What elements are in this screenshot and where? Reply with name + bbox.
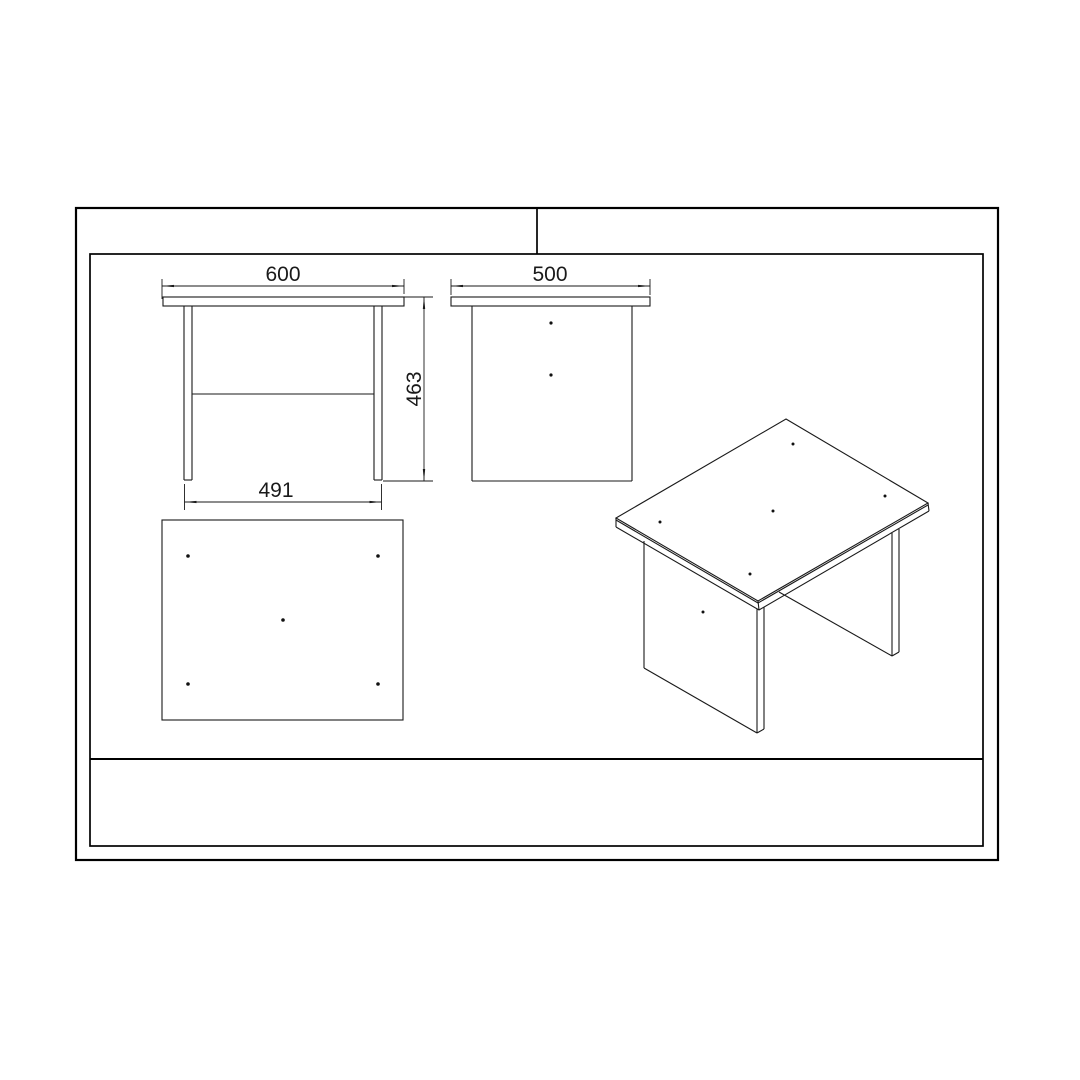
side-panel xyxy=(472,306,632,481)
fastener-dot xyxy=(702,611,705,614)
drawing-sheet: 600 491 463 xyxy=(0,0,1080,1080)
iso-tabletop xyxy=(616,419,929,610)
fastener-dot xyxy=(792,443,795,446)
fastener-dot xyxy=(281,618,285,622)
fastener-dot xyxy=(549,373,552,376)
front-view: 600 491 463 xyxy=(162,263,433,510)
front-right-leg xyxy=(374,306,382,480)
fastener-dot xyxy=(549,321,552,324)
title-block-area xyxy=(90,759,983,846)
fastener-dot xyxy=(772,510,775,513)
dimension-height: 463 xyxy=(383,297,433,481)
iso-far-leg xyxy=(779,529,899,656)
technical-drawing: 600 491 463 xyxy=(0,0,1080,1080)
isometric-view xyxy=(616,419,929,733)
dimension-label-top-width: 600 xyxy=(265,263,300,286)
fastener-dot xyxy=(186,554,190,558)
fastener-dot xyxy=(749,573,752,576)
dimension-top-depth: 500 xyxy=(451,263,650,295)
side-view: 500 xyxy=(451,263,650,481)
fastener-dot xyxy=(884,495,887,498)
fastener-dot xyxy=(376,682,380,686)
fastener-dot xyxy=(659,521,662,524)
front-tabletop xyxy=(163,297,404,306)
top-view xyxy=(162,520,403,720)
dimension-top-width: 600 xyxy=(162,263,404,299)
fastener-dot xyxy=(186,682,190,686)
dimension-label-height: 463 xyxy=(403,371,426,406)
fastener-dot xyxy=(376,554,380,558)
dimension-label-top-depth: 500 xyxy=(532,263,567,286)
side-tabletop xyxy=(451,297,650,306)
front-left-leg xyxy=(184,306,192,480)
dimension-leg-span: 491 xyxy=(185,479,382,510)
dimension-label-leg-span: 491 xyxy=(258,479,293,502)
